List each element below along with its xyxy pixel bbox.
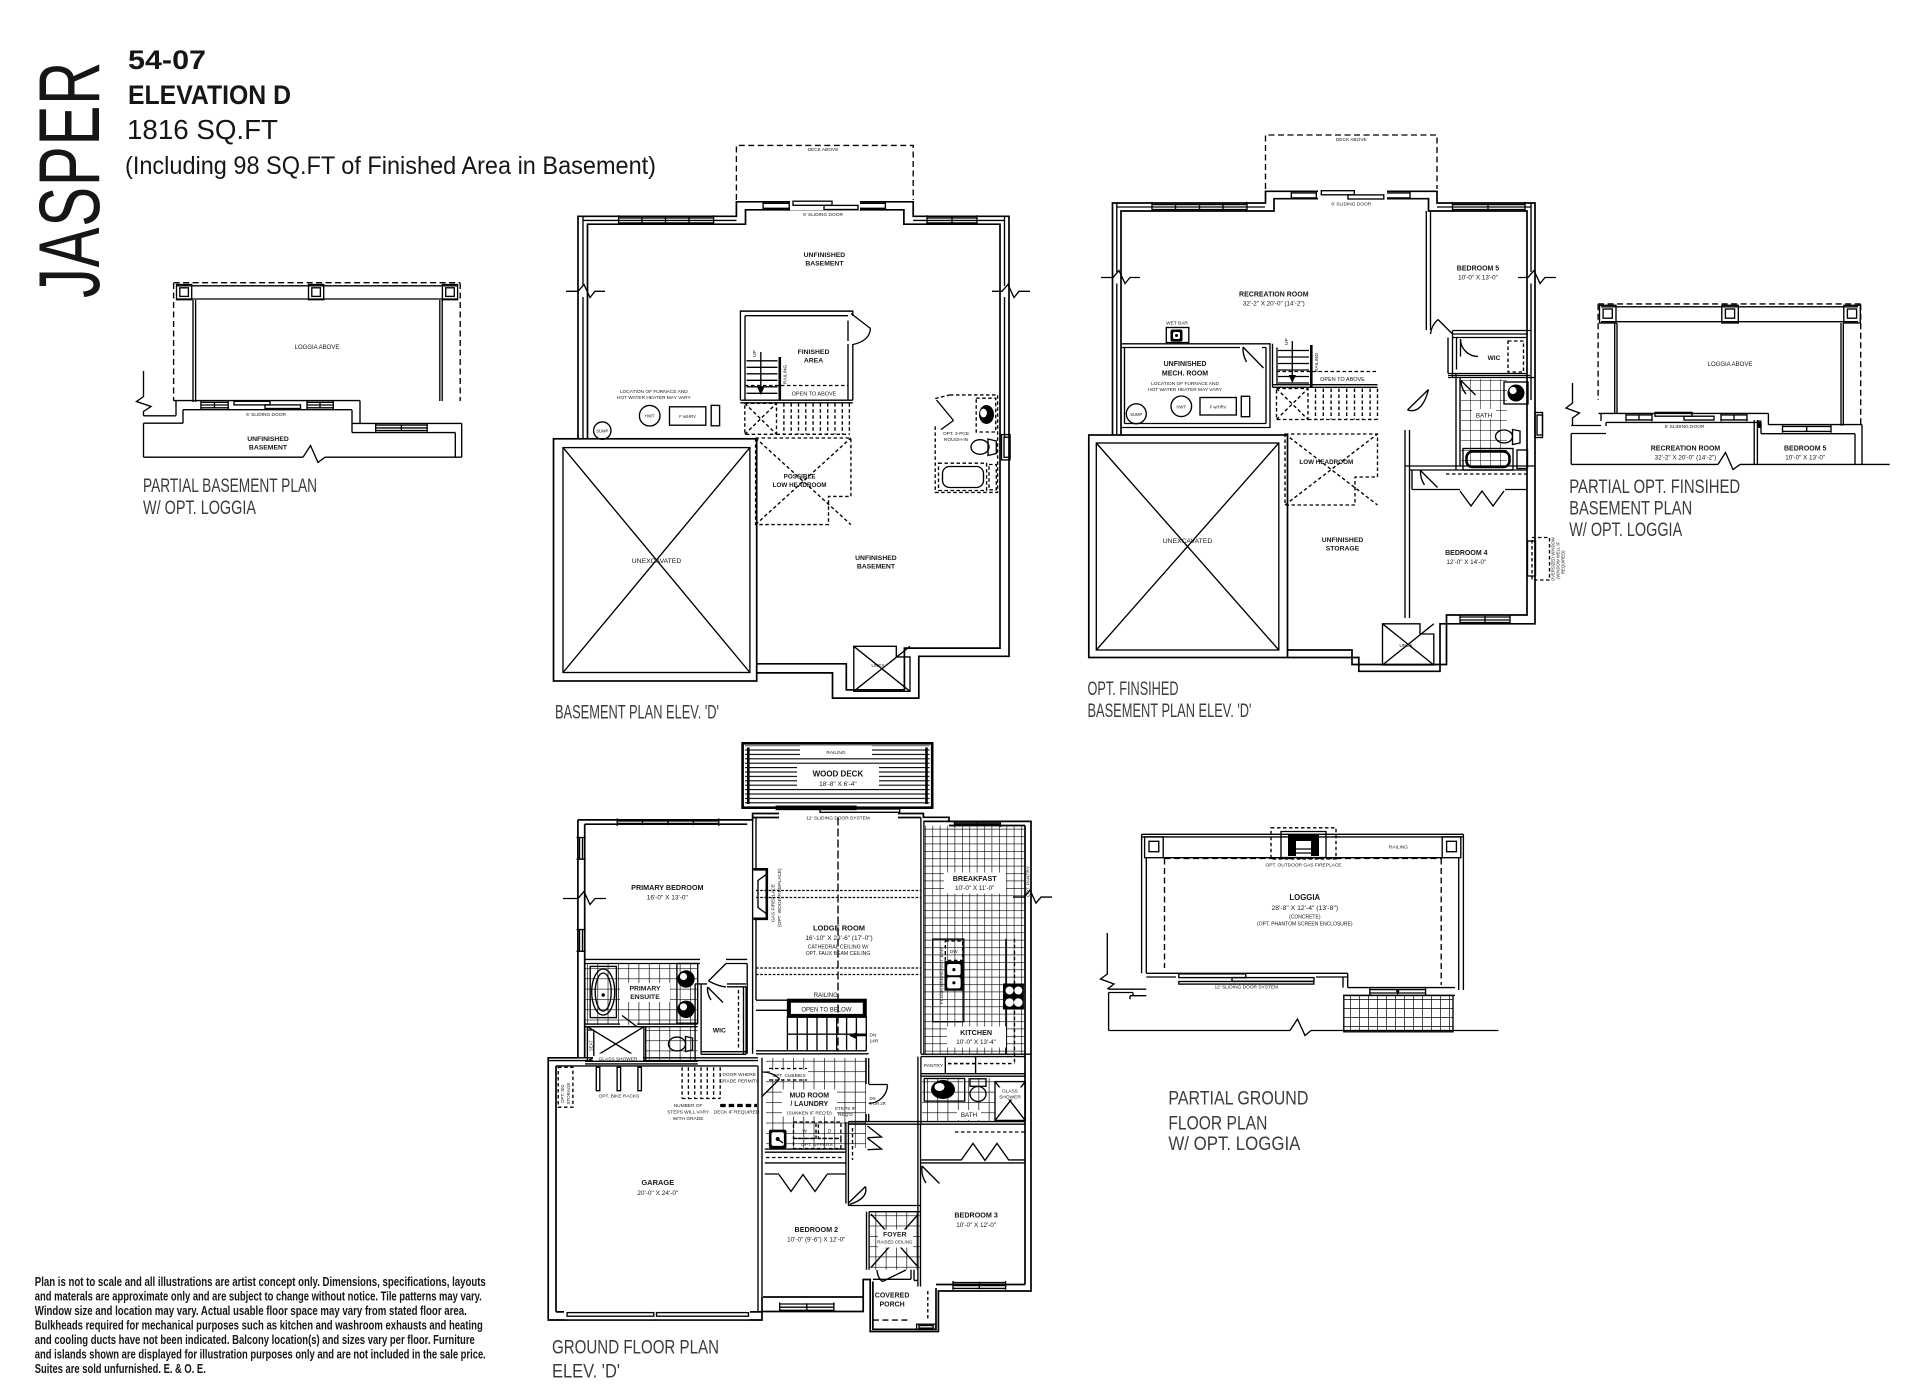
svg-text:HOT WATER HEATER MAY VARY: HOT WATER HEATER MAY VARY [1148,387,1223,393]
svg-text:PRIMARY: PRIMARY [629,986,661,993]
svg-text:HWT: HWT [1177,404,1187,409]
svg-text:RAISED CEILING: RAISED CEILING [877,1240,913,1245]
svg-text:BREAKFAST: BREAKFAST [953,874,998,883]
svg-text:SHOWER: SHOWER [999,1095,1021,1101]
svg-text:DW: DW [950,949,958,954]
svg-text:RAILING: RAILING [814,993,838,999]
svg-text:UNFINISHED: UNFINISHED [804,252,846,259]
svg-text:ENSUITE: ENSUITE [630,994,660,1001]
svg-text:BASEMENT: BASEMENT [249,445,288,452]
svg-text:OPT. OUTDOOR GAS FIREPLACE: OPT. OUTDOOR GAS FIREPLACE [1266,863,1342,869]
svg-text:F w/HRV: F w/HRV [679,414,696,419]
svg-text:HOT WATER HEATER MAY VARY: HOT WATER HEATER MAY VARY [617,395,692,401]
svg-text:REQUIRED): REQUIRED) [1561,550,1566,574]
svg-text:W: W [802,1129,807,1135]
svg-text:(SUNKEN IF REQ'D): (SUNKEN IF REQ'D) [787,1111,832,1117]
svg-text:WIC: WIC [713,1028,726,1035]
svg-text:PARTIAL GROUND: PARTIAL GROUND [1168,1088,1308,1110]
svg-text:and cooling ducts have not bee: and cooling ducts have not been indicate… [35,1332,475,1347]
svg-text:FOYER: FOYER [883,1232,907,1239]
svg-text:Plan is not to scale and all i: Plan is not to scale and all illustratio… [35,1274,486,1289]
svg-text:10'-0" (9'-6") X 12'-0": 10'-0" (9'-6") X 12'-0" [787,1237,845,1244]
svg-text:BEDROOM 3: BEDROOM 3 [954,1211,998,1220]
svg-text:UNEXCAVATED: UNEXCAVATED [632,558,682,565]
svg-text:OPEN TO ABOVE: OPEN TO ABOVE [792,392,837,398]
svg-text:6' SLIDING DOOR: 6' SLIDING DOOR [803,212,843,218]
svg-text:KITCHEN: KITCHEN [960,1028,992,1037]
svg-text:UNEX: UNEX [1399,643,1413,649]
svg-text:(OPT. PHANTOM SCREEN ENCLOSURE: (OPT. PHANTOM SCREEN ENCLOSURE) [1257,922,1353,928]
svg-text:UNEX: UNEX [871,663,885,669]
svg-text:32'-2" X 20'-0" (14'-2"): 32'-2" X 20'-0" (14'-2") [1655,455,1717,462]
svg-text:14R: 14R [870,1039,879,1045]
svg-text:OPT. CUBBIES: OPT. CUBBIES [772,1073,805,1079]
svg-text:GARAGE: GARAGE [641,1178,674,1187]
svg-text:and materals are approximate o: and materals are approximate only and ar… [35,1289,482,1304]
svg-text:and islands shown are displaye: and islands shown are displayed for illu… [35,1347,486,1362]
svg-text:AREA: AREA [804,358,823,365]
svg-text:RAILING: RAILING [1389,845,1408,851]
svg-text:UP: UP [1284,338,1290,345]
svg-text:STEPS IF: STEPS IF [835,1106,856,1112]
svg-text:BEDROOM 2: BEDROOM 2 [795,1225,839,1234]
svg-text:6' SLIDING DOOR: 6' SLIDING DOOR [246,412,286,418]
svg-text:10'-0" X 12'-0": 10'-0" X 12'-0" [956,1222,996,1229]
svg-text:OPT. BIKE RACKS: OPT. BIKE RACKS [599,1094,640,1100]
svg-text:MUD ROOM: MUD ROOM [789,1093,829,1100]
svg-text:ELEVATION D: ELEVATION D [128,80,291,110]
svg-text:PARTIAL BASEMENT PLAN: PARTIAL BASEMENT PLAN [143,475,317,497]
svg-text:18'-8" X 6'-4": 18'-8" X 6'-4" [819,781,857,788]
svg-text:BEDROOM 4: BEDROOM 4 [1445,550,1488,557]
svg-text:Bulkheads required for mechani: Bulkheads required for mechanical purpos… [35,1318,483,1333]
svg-text:10'-0" X 11'-0": 10'-0" X 11'-0" [955,885,994,892]
svg-text:WIC: WIC [1488,355,1501,362]
svg-text:(CONCRETE): (CONCRETE) [1289,915,1321,921]
svg-text:PRIMARY BEDROOM: PRIMARY BEDROOM [631,883,703,892]
svg-text:UNEXCAVATED: UNEXCAVATED [1163,538,1213,545]
svg-text:RECREATION ROOM: RECREATION ROOM [1651,446,1721,453]
svg-text:12' SLIDING DOOR SYSTEM: 12' SLIDING DOOR SYSTEM [1215,985,1279,991]
svg-text:FINISHED: FINISHED [798,349,830,356]
svg-text:RAILING: RAILING [826,750,845,756]
svg-text:UNFINISHED: UNFINISHED [1164,361,1207,368]
svg-text:20'-0" X 24'-0": 20'-0" X 24'-0" [637,1190,679,1197]
svg-text:STORAGE: STORAGE [1326,546,1360,553]
svg-text:WITH GRADE: WITH GRADE [673,1116,704,1122]
svg-text:(Including 98 SQ.FT of Finishe: (Including 98 SQ.FT of Finished Area in … [125,152,656,180]
svg-text:BASEMENT: BASEMENT [857,564,896,571]
svg-text:UNFINISHED: UNFINISHED [247,436,289,443]
svg-text:W/ OPT. LOGGIA: W/ OPT. LOGGIA [143,497,256,519]
svg-text:DECK ABOVE: DECK ABOVE [1336,137,1367,143]
svg-text:STORAGE: STORAGE [566,1083,571,1105]
svg-text:LOGGIA ABOVE: LOGGIA ABOVE [1708,362,1753,368]
svg-text:BASEMENT PLAN ELEV. 'D': BASEMENT PLAN ELEV. 'D' [1088,700,1252,722]
svg-text:16'-0" X 13'-0": 16'-0" X 13'-0" [647,895,689,902]
svg-text:STEPS WILL VARY: STEPS WILL VARY [667,1110,710,1116]
svg-text:10'-0" X 13'-0": 10'-0" X 13'-0" [1458,275,1498,282]
svg-text:PORCH: PORCH [879,1302,904,1309]
svg-text:OPEN TO ABOVE: OPEN TO ABOVE [1320,377,1365,383]
svg-text:ROUGH-IN: ROUGH-IN [944,437,969,443]
svg-text:LOGGIA ABOVE: LOGGIA ABOVE [295,345,340,351]
svg-text:OPEN TO BELOW: OPEN TO BELOW [801,1007,851,1013]
svg-text:D: D [828,1129,832,1135]
svg-text:JASPER: JASPER [22,61,118,298]
svg-text:10'-0" X 13'-0": 10'-0" X 13'-0" [1785,455,1825,462]
svg-text:WET BAR: WET BAR [1166,321,1188,327]
svg-text:LOW HEADROOM: LOW HEADROOM [1299,459,1353,466]
svg-text:OPT. SKI: OPT. SKI [560,1084,565,1103]
svg-text:BEDROOM 5: BEDROOM 5 [1784,446,1827,453]
svg-text:COVERED: COVERED [875,1293,910,1300]
svg-text:LOCATION OF FURNACE AND: LOCATION OF FURNACE AND [620,389,688,395]
svg-text:BATH: BATH [961,1112,978,1119]
svg-text:FLUSH BREAKFAST BAR: FLUSH BREAKFAST BAR [939,947,945,1004]
svg-text:CATHEDRAL CEILING W/: CATHEDRAL CEILING W/ [808,945,869,951]
svg-text:DOOR WHERE: DOOR WHERE [722,1072,756,1078]
svg-text:BASEMENT PLAN ELEV. 'D': BASEMENT PLAN ELEV. 'D' [555,702,719,724]
svg-text:Suites are sold unfurnished. E: Suites are sold unfurnished. E. & O. E. [35,1361,206,1376]
svg-text:RECREATION ROOM: RECREATION ROOM [1239,292,1309,299]
svg-text:12'-0" X 14'-0": 12'-0" X 14'-0" [1446,559,1486,566]
svg-text:GAS FIREPLACE: GAS FIREPLACE [771,884,777,922]
svg-text:MECH. ROOM: MECH. ROOM [1162,371,1208,378]
svg-text:6' SLIDING DOOR: 6' SLIDING DOOR [1665,424,1705,430]
svg-text:28'-8" X 12'-4" (13'-8"): 28'-8" X 12'-4" (13'-8") [1271,905,1338,912]
svg-text:POSSIBLE: POSSIBLE [784,474,816,481]
svg-text:W/ OPT. LOGGIA: W/ OPT. LOGGIA [1168,1133,1300,1155]
svg-text:GLASS: GLASS [1002,1089,1018,1095]
svg-text:F w/HRV: F w/HRV [1210,405,1227,410]
svg-text:RAILING: RAILING [783,365,789,384]
svg-text:LOCATION OF FURNACE AND: LOCATION OF FURNACE AND [1151,381,1219,387]
svg-text:PANTRY: PANTRY [924,1063,944,1069]
svg-text:UP: UP [752,350,758,357]
svg-text:SUMP: SUMP [1130,412,1142,417]
svg-text:LOW HEADROOM: LOW HEADROOM [773,482,827,489]
svg-text:OPT. UPPERS: OPT. UPPERS [801,1142,833,1148]
svg-text:6' SLIDING DOOR: 6' SLIDING DOOR [1331,201,1371,207]
svg-text:UNFINISHED: UNFINISHED [855,555,897,562]
svg-text:DN: DN [870,1033,877,1039]
svg-text:WOOD DECK: WOOD DECK [813,770,864,779]
svg-text:SUMP: SUMP [596,429,608,434]
svg-text:LODGE ROOM: LODGE ROOM [813,924,865,933]
svg-text:HWT: HWT [645,414,655,419]
svg-text:GRADE PERMITS: GRADE PERMITS [719,1079,759,1085]
svg-text:54-07: 54-07 [128,45,206,75]
svg-text:BASEMENT PLAN: BASEMENT PLAN [1569,498,1692,520]
svg-text:FLOOR PLAN: FLOOR PLAN [1168,1113,1267,1135]
svg-text:PARTIAL OPT. FINSIHED: PARTIAL OPT. FINSIHED [1569,476,1740,498]
svg-text:OPT. FAUX BEAM CEILING: OPT. FAUX BEAM CEILING [806,951,871,957]
svg-text:32'-2" X 20'-0" (14'-2"): 32'-2" X 20'-0" (14'-2") [1243,301,1305,308]
svg-text:W/ OPT. LOGGIA: W/ OPT. LOGGIA [1569,519,1682,541]
svg-text:DECK ABOVE: DECK ABOVE [808,147,839,153]
svg-text:OPT. FINSIHED: OPT. FINSIHED [1088,678,1179,700]
svg-text:BATH: BATH [1476,413,1493,420]
svg-text:/ LAUNDRY: / LAUNDRY [790,1101,828,1108]
svg-text:NUMBER OF: NUMBER OF [674,1103,703,1109]
svg-text:16'-10" X 23'-6" (17'-0"): 16'-10" X 23'-6" (17'-0") [805,935,872,942]
svg-text:DECK IF REQUIRED: DECK IF REQUIRED [714,1110,760,1116]
svg-text:GROUND FLOOR PLAN: GROUND FLOOR PLAN [552,1337,719,1359]
svg-text:RAILING: RAILING [1314,353,1320,372]
svg-text:LOGGIA: LOGGIA [1289,893,1320,902]
svg-text:SEAT: SEAT [589,1040,594,1051]
svg-text:1816 SQ.FT: 1816 SQ.FT [127,114,278,145]
svg-text:ELEV. 'D': ELEV. 'D' [552,1361,620,1383]
svg-text:BASEMENT: BASEMENT [805,261,844,268]
svg-text:OPT. 3-PCE: OPT. 3-PCE [943,431,969,437]
svg-text:UNFINISHED: UNFINISHED [1322,537,1364,544]
svg-text:REQ'D: REQ'D [838,1112,853,1118]
svg-text:OPT. PANTRY: OPT. PANTRY [1026,865,1032,897]
svg-text:BEDROOM 5: BEDROOM 5 [1457,266,1500,273]
svg-text:10'-0" X 13'-4": 10'-0" X 13'-4" [956,1039,996,1046]
svg-text:Window size and location may v: Window size and location may vary. Actua… [35,1303,467,1318]
